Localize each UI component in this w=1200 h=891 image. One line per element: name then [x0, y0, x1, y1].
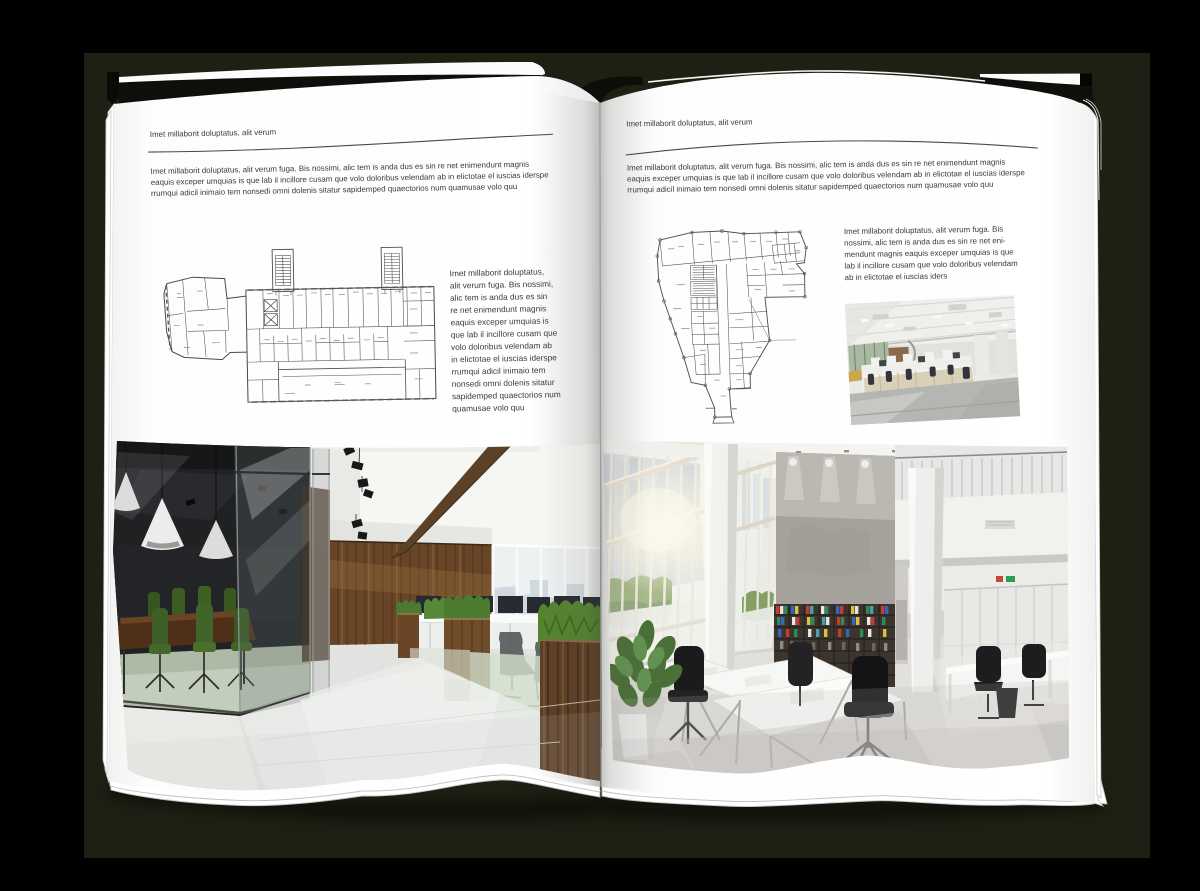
- svg-text:quamusae volo quu: quamusae volo quu: [452, 402, 525, 413]
- svg-text:rrumqui adicil inimaio tem: rrumqui adicil inimaio tem: [451, 365, 545, 377]
- svg-text:alit verum fuga. Bis nossimi,: alit verum fuga. Bis nossimi,: [450, 279, 553, 291]
- svg-text:volo doloribus velendam ab: volo doloribus velendam ab: [451, 340, 553, 352]
- svg-text:nonsedi omni dolenis sitatur: nonsedi omni dolenis sitatur: [452, 377, 555, 389]
- svg-text:re net enimendunt magnis: re net enimendunt magnis: [450, 303, 546, 315]
- svg-text:Imet millaborit doluptatus,: Imet millaborit doluptatus,: [449, 266, 544, 278]
- svg-text:alic tem is anda dus es sin: alic tem is anda dus es sin: [450, 291, 548, 303]
- svg-text:ab in elictotae el iuscias ide: ab in elictotae el iuscias iders: [845, 271, 948, 282]
- svg-text:eaquis exceper umquias is: eaquis exceper umquias is: [450, 316, 548, 328]
